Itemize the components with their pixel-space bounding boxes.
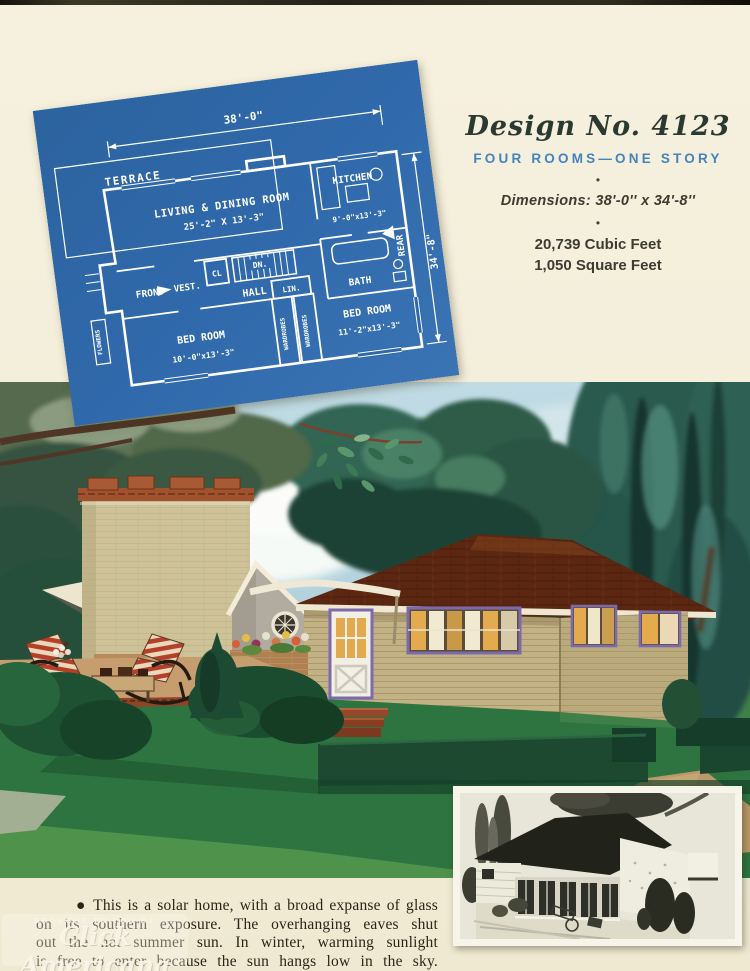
caption-line: ● This is a solar home, with a broad exp…: [36, 897, 438, 916]
rear-view-art: [460, 793, 735, 939]
svg-text:CL: CL: [211, 269, 222, 279]
cubic-feet: 20,739 Cubic Feet: [452, 236, 744, 253]
square-feet: 1,050 Square Feet: [452, 257, 744, 274]
corner-shrub: [662, 679, 702, 729]
bullet-separator-2: •: [452, 218, 744, 228]
caption-line: is free to enter because the sun hangs l…: [36, 953, 438, 971]
floor-plan: 38'-0" TERRACE: [33, 60, 460, 427]
design-info: Design No. 4123 FOUR ROOMS—ONE STORY • D…: [452, 111, 744, 274]
design-subtitle: FOUR ROOMS—ONE STORY: [452, 151, 744, 166]
caption-paragraph: ● This is a solar home, with a broad exp…: [36, 897, 438, 971]
svg-text:DN.: DN.: [252, 259, 268, 270]
bullet-separator-1: •: [452, 175, 744, 185]
design-title: Design No. 4123: [452, 111, 744, 142]
design-dimensions: Dimensions: 38'-0'' x 34'-8'': [452, 193, 744, 209]
catalog-page: 38'-0" TERRACE: [0, 0, 750, 971]
caption-line: out the hot summer sun. In winter, warmi…: [36, 934, 438, 953]
blueprint-panel: 38'-0" TERRACE: [33, 60, 460, 427]
side-window-1: [572, 606, 616, 646]
caption-line: on its southern exposure. The overhangin…: [36, 916, 438, 935]
scan-edge: [0, 0, 750, 5]
side-window-2: [640, 612, 680, 646]
front-window-band: [408, 608, 520, 653]
rear-view-inset: [453, 786, 742, 946]
